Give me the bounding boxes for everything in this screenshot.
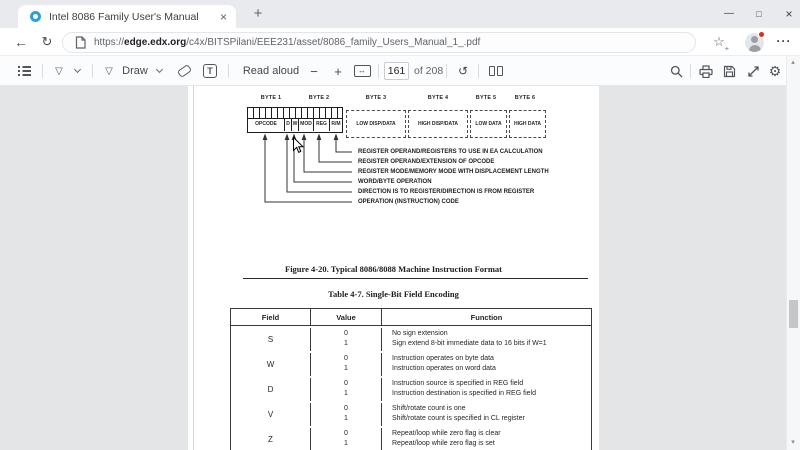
pdf-content-area: BYTE 1 BYTE 2 BYTE 3 BYTE 4 BYTE 5 BYTE …: [0, 86, 786, 450]
callout-label: WORD/BYTE OPERATION: [358, 179, 432, 186]
plus-badge-icon: +: [725, 46, 729, 53]
scrollbar-track[interactable]: [786, 56, 800, 450]
address-bar-row: ← ↻ https://edge.edx.org/c4x/BITSPilani/…: [0, 28, 800, 56]
fullscreen-button[interactable]: [742, 56, 764, 86]
bit-values: 01: [310, 328, 381, 351]
function-text: Instruction source is specified in REG f…: [381, 378, 591, 401]
refresh-button[interactable]: ↻: [36, 28, 58, 56]
table-header-row: Field Value Function: [231, 309, 591, 326]
table-row: S 01 No sign extensionSign extend 8-bit …: [231, 326, 591, 351]
erase-button[interactable]: [172, 56, 196, 86]
scroll-up-icon[interactable]: ▴: [786, 57, 800, 69]
column-header: Field: [231, 309, 310, 326]
table-row: W 01 Instruction operates on byte dataIn…: [231, 351, 591, 376]
print-icon: [699, 65, 713, 78]
document-icon: [75, 36, 86, 49]
table-row: V 01 Shift/rotate count is oneShift/rota…: [231, 401, 591, 426]
browser-window: Intel 8086 Family User's Manual × + — □ …: [0, 0, 800, 450]
pdf-page: BYTE 1 BYTE 2 BYTE 3 BYTE 4 BYTE 5 BYTE …: [188, 86, 599, 450]
highlight-dropdown[interactable]: [70, 56, 84, 86]
table-row: Z 01 Repeat/loop while zero flag is clea…: [231, 426, 591, 450]
chevron-down-icon: [155, 66, 162, 73]
back-button[interactable]: ←: [10, 28, 32, 56]
divider: [478, 64, 479, 78]
figure-caption: Figure 4-20. Typical 8086/8088 Machine I…: [188, 264, 599, 274]
draw-button[interactable]: ▽: [100, 56, 118, 86]
highlighter-icon: ▽: [55, 66, 63, 77]
url-scheme: https://: [94, 37, 124, 48]
url-path: /c4x/BITSPilani/EEE231/asset/8086_family…: [186, 37, 480, 48]
section-rule: [243, 278, 588, 279]
search-document-button[interactable]: [666, 56, 686, 86]
url-text: https://edge.edx.org/c4x/BITSPilani/EEE2…: [94, 37, 480, 48]
window-minimize-button[interactable]: —: [714, 0, 744, 28]
highlight-button[interactable]: ▽: [50, 56, 68, 86]
page-view-icon: [489, 66, 503, 76]
function-text: Shift/rotate count is oneShift/rotate co…: [381, 403, 591, 426]
add-favorite-button[interactable]: ☆+: [706, 28, 732, 56]
bit-values: 01: [310, 378, 381, 401]
column-header: Value: [310, 309, 381, 326]
function-text: Repeat/loop while zero flag is clearRepe…: [381, 428, 591, 450]
scroll-down-icon[interactable]: ▾: [786, 437, 800, 449]
search-icon: [670, 65, 683, 78]
save-button[interactable]: [718, 56, 740, 86]
draw-label[interactable]: Draw: [118, 56, 152, 86]
window-maximize-button[interactable]: □: [744, 0, 774, 28]
function-text: Instruction operates on byte dataInstruc…: [381, 353, 591, 376]
field-value: W: [231, 353, 310, 376]
table-of-contents-icon: [18, 66, 31, 76]
notification-badge: [758, 31, 765, 38]
window-close-button[interactable]: ×: [774, 0, 800, 28]
zoom-in-button[interactable]: +: [328, 56, 348, 86]
address-bar[interactable]: https://edge.edx.org/c4x/BITSPilani/EEE2…: [62, 32, 696, 53]
print-button[interactable]: [695, 56, 717, 86]
eraser-icon: [176, 64, 191, 78]
callout-label: REGISTER OPERAND/REGISTERS TO USE IN EA …: [358, 149, 543, 156]
add-text-icon: T: [203, 64, 217, 78]
divider: [92, 64, 93, 78]
function-text: No sign extensionSign extend 8-bit immed…: [381, 328, 591, 351]
add-text-button[interactable]: T: [198, 56, 222, 86]
field-value: Z: [231, 428, 310, 450]
divider: [690, 64, 691, 78]
divider: [378, 64, 379, 78]
chevron-down-icon: [73, 66, 80, 73]
tab-title: Intel 8086 Family User's Manual: [49, 11, 216, 23]
gear-icon: ⚙: [769, 63, 782, 80]
table-of-contents-button[interactable]: [14, 56, 34, 86]
table-row: D 01 Instruction source is specified in …: [231, 376, 591, 401]
field-value: V: [231, 403, 310, 426]
fit-width-icon: ↔: [354, 65, 371, 77]
avatar-body: [749, 45, 761, 52]
pdf-settings-button[interactable]: ⚙: [764, 56, 786, 86]
divider: [42, 64, 43, 78]
browser-tab[interactable]: Intel 8086 Family User's Manual ×: [18, 5, 236, 28]
mouse-cursor: [293, 137, 305, 154]
new-tab-button[interactable]: +: [248, 4, 268, 24]
url-host: edge.edx.org: [124, 37, 186, 48]
callout-label: OPERATION (INSTRUCTION) CODE: [358, 199, 459, 206]
save-icon: [723, 65, 736, 78]
avatar-head: [751, 36, 758, 43]
star-icon: ☆: [713, 34, 725, 49]
draw-dropdown[interactable]: [152, 56, 166, 86]
expand-icon: [747, 65, 760, 78]
column-header: Function: [381, 309, 591, 326]
divider: [228, 64, 229, 78]
page-view-button[interactable]: [484, 56, 508, 86]
bit-values: 01: [310, 353, 381, 376]
callout-label: REGISTER MODE/MEMORY MODE WITH DISPLACEM…: [358, 169, 549, 176]
rotate-button[interactable]: ↺: [452, 56, 474, 86]
pdf-toolbar: ▽ ▽ Draw T Read aloud − + ↔ of 208 ↺: [0, 56, 786, 86]
zoom-out-button[interactable]: −: [304, 56, 324, 86]
field-value: D: [231, 378, 310, 401]
fit-to-width-button[interactable]: ↔: [350, 56, 374, 86]
bit-values: 01: [310, 403, 381, 426]
divider: [446, 64, 447, 78]
single-bit-field-table: Field Value Function S 01 No sign extens…: [230, 308, 592, 450]
callout-label: REGISTER OPERAND/EXTENSION OF OPCODE: [358, 159, 494, 166]
tab-favicon-icon: [30, 11, 41, 22]
page-number-input[interactable]: [384, 62, 409, 80]
field-value: S: [231, 328, 310, 351]
callout-label: DIRECTION IS TO REGISTER/DIRECTION IS FR…: [358, 189, 534, 196]
table-caption: Table 4-7. Single-Bit Field Encoding: [188, 289, 599, 299]
tab-close-icon[interactable]: ×: [220, 10, 227, 24]
browser-menu-button[interactable]: ···: [772, 28, 796, 56]
read-aloud-button[interactable]: Read aloud: [240, 56, 302, 86]
tab-strip: Intel 8086 Family User's Manual × + — □ …: [0, 0, 800, 28]
page-count-label: of 208: [414, 56, 443, 86]
scrollbar-thumb[interactable]: [789, 300, 798, 328]
bit-values: 01: [310, 428, 381, 450]
draw-pen-icon: ▽: [105, 66, 113, 77]
